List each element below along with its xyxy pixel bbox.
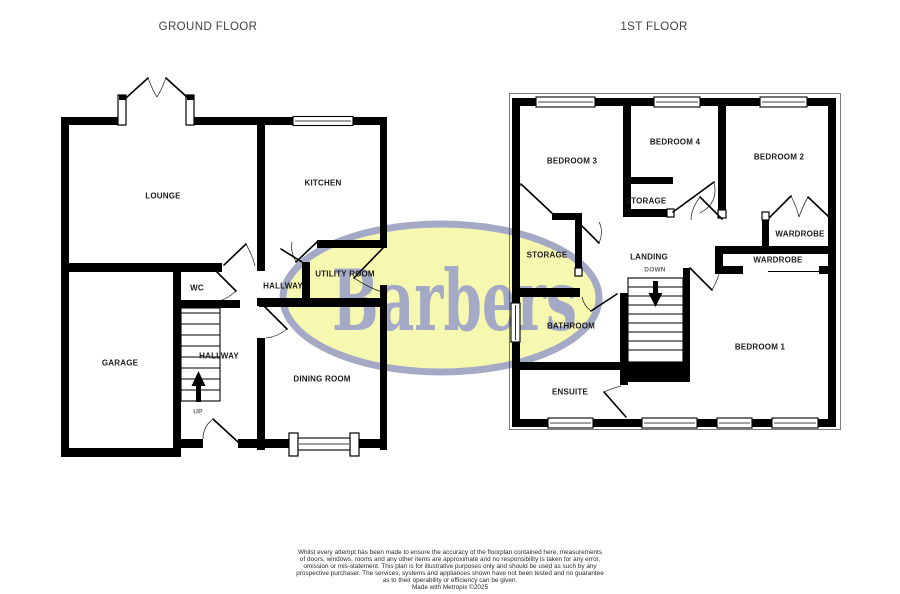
stairs-down bbox=[628, 278, 683, 362]
room-label-utility-room: UTILITY ROOM bbox=[315, 270, 375, 279]
room-label-landing: LANDING bbox=[630, 253, 668, 262]
room-label-bedroom1: BEDROOM 1 bbox=[735, 343, 785, 352]
room-label-bathroom: BATHROOM bbox=[547, 322, 595, 331]
room-label-kitchen: KITCHEN bbox=[305, 179, 342, 188]
room-label-lounge: LOUNGE bbox=[145, 192, 180, 201]
room-label-hallway-upper: HALLWAY bbox=[263, 282, 303, 291]
window-post bbox=[289, 433, 298, 456]
down-arrow bbox=[653, 281, 658, 295]
bedroom1-door bbox=[690, 268, 712, 290]
room-label-dining-room: DINING ROOM bbox=[293, 375, 350, 384]
room-label-hallway-stairs: HALLWAY bbox=[199, 352, 239, 361]
disclaimer: Whilst every attempt has been made to en… bbox=[220, 549, 680, 592]
door-jamb bbox=[575, 268, 582, 276]
wardrobe-door bbox=[770, 196, 791, 217]
disclaimer-line: omission or mis-statement. This plan is … bbox=[220, 563, 680, 570]
room-label-storage-small: STORAGE bbox=[626, 197, 667, 206]
room-label-wardrobe-lower: WARDROBE bbox=[753, 256, 802, 265]
room-label-storage-left: STORAGE bbox=[527, 251, 568, 260]
disclaimer-line: prospective purchaser. The services, sys… bbox=[220, 570, 680, 577]
door-jamb bbox=[667, 209, 674, 217]
lounge-door bbox=[224, 244, 246, 265]
door-jamb bbox=[762, 212, 769, 220]
room-label-ensuite: ENSUITE bbox=[552, 388, 588, 397]
disclaimer-line: Whilst every attempt has been made to en… bbox=[220, 549, 680, 556]
room-label-wc: WC bbox=[190, 284, 204, 293]
disclaimer-line: of doors, windows, rooms and any other i… bbox=[220, 556, 680, 563]
label-down: DOWN bbox=[644, 267, 665, 274]
window-post bbox=[350, 433, 359, 456]
room-label-bedroom4: BEDROOM 4 bbox=[650, 138, 700, 147]
room-label-bedroom3: BEDROOM 3 bbox=[547, 157, 597, 166]
up-arrow bbox=[196, 385, 201, 402]
floorplan-drawing: Barbers bbox=[0, 0, 900, 594]
front-door bbox=[213, 419, 238, 442]
first-floor-title: 1ST FLOOR bbox=[620, 21, 687, 33]
bedroom3-door bbox=[521, 184, 554, 215]
floorplan-page: Barbers bbox=[0, 0, 900, 594]
label-up: UP bbox=[193, 409, 202, 416]
made-with-credit: Made with Metropix ©2025 bbox=[220, 584, 680, 591]
ensuite-door bbox=[604, 392, 626, 417]
ground-floor-title: GROUND FLOOR bbox=[159, 21, 258, 33]
room-label-wardrobe-top: WARDROBE bbox=[775, 230, 824, 239]
room-label-bedroom2: BEDROOM 2 bbox=[754, 153, 804, 162]
wc-door bbox=[215, 270, 236, 291]
room-label-garage: GARAGE bbox=[102, 359, 138, 368]
lounge-patio-door bbox=[126, 78, 148, 98]
